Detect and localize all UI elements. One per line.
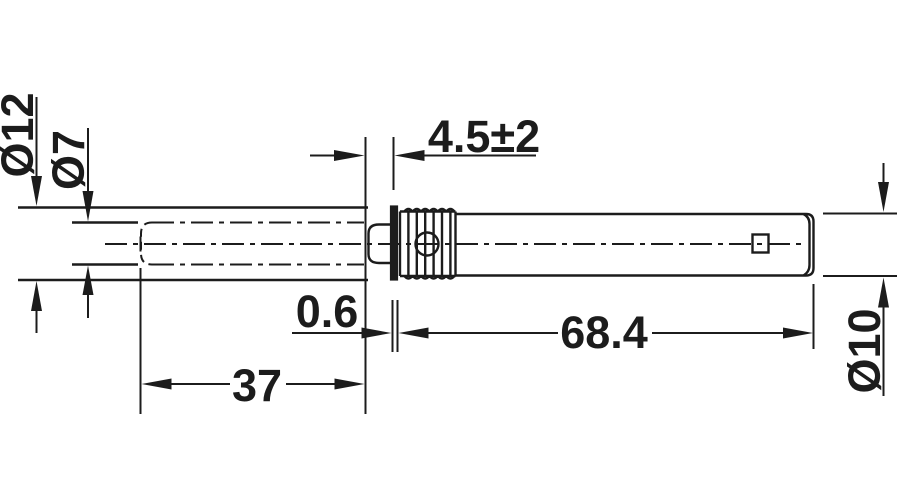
label-housing-diameter: Ø10: [839, 308, 890, 393]
length-left-arrow: [399, 328, 429, 339]
dia7-top-arrow: [83, 191, 94, 222]
depth-right-arrow: [335, 379, 365, 390]
housing-end-cap-inner: [804, 214, 810, 276]
label-bore-depth: 37: [232, 360, 282, 411]
dia10-bottom-arrow: [878, 278, 889, 308]
thread-crest-bumps-bottom: [404, 276, 454, 279]
flange-collar: [391, 206, 398, 280]
label-housing-length: 68.4: [560, 307, 648, 358]
label-flange-thickness: 0.6: [296, 286, 359, 337]
projection-right-arrow: [395, 150, 425, 161]
dia12-top-arrow: [31, 176, 42, 206]
label-projection: 4.5±2: [428, 111, 540, 162]
length-right-arrow: [783, 328, 813, 339]
projection-left-arrow: [334, 150, 365, 161]
depth-left-arrow: [142, 379, 172, 390]
label-sleeve-bore-diameter: Ø12: [0, 92, 43, 177]
label-plunger-diameter: Ø7: [43, 130, 94, 190]
dia10-top-arrow: [878, 182, 889, 212]
flange-dim-arrow: [362, 328, 392, 339]
drawing-page: 4.5±2 0.6 68.4 37 Ø12 Ø7 Ø10: [0, 0, 900, 500]
dia12-bottom-arrow: [31, 281, 42, 311]
thread-crest-bumps-top: [404, 209, 454, 212]
technical-drawing-canvas: 4.5±2 0.6 68.4 37 Ø12 Ø7 Ø10: [0, 0, 900, 500]
